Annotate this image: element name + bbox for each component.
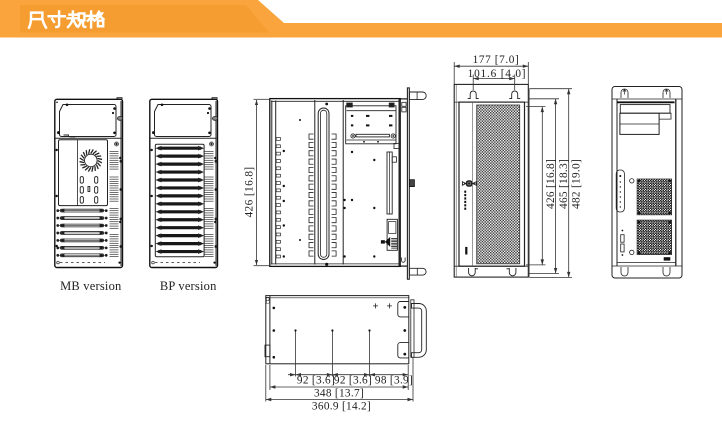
svg-text:482 [19.0]: 482 [19.0]: [571, 159, 583, 209]
svg-text:360.9 [14.2]: 360.9 [14.2]: [312, 401, 371, 413]
svg-text:426 [16.8]: 426 [16.8]: [545, 159, 557, 209]
svg-text:465 [18.3]: 465 [18.3]: [558, 159, 570, 209]
svg-text:BP version: BP version: [160, 279, 217, 293]
svg-text:MB version: MB version: [60, 279, 122, 293]
svg-text:B: B: [265, 296, 271, 306]
svg-text:348 [13.7]: 348 [13.7]: [314, 388, 364, 400]
svg-text:177 [7.0]: 177 [7.0]: [473, 54, 520, 66]
svg-text:98 [3.9]: 98 [3.9]: [375, 375, 413, 387]
svg-text:101.6 [4.0]: 101.6 [4.0]: [468, 68, 527, 80]
svg-text:92 [3.6]: 92 [3.6]: [297, 375, 335, 387]
svg-text:426 [16.8]: 426 [16.8]: [244, 166, 256, 217]
svg-text:92 [3.6]: 92 [3.6]: [334, 375, 372, 387]
